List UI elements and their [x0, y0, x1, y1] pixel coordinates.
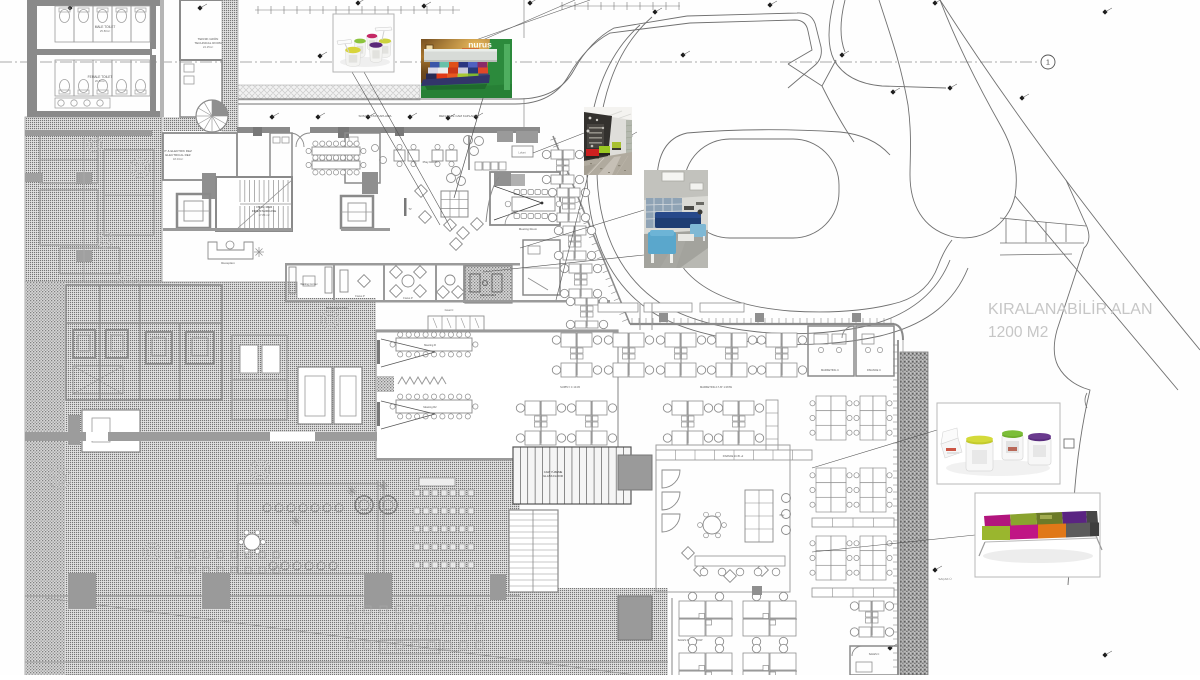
svg-text:TV: TV	[408, 207, 412, 211]
svg-text:24.25m²: 24.25m²	[203, 45, 213, 49]
svg-text:Play Room: Play Room	[423, 160, 438, 164]
svg-text:FINANCE C: FINANCE C	[867, 368, 881, 372]
svg-text:1: 1	[1046, 60, 1050, 67]
svg-text:KIRALANABİLİR ALAN: KIRALANABİLİR ALAN	[988, 299, 1153, 318]
svg-text:Meeting R2: Meeting R2	[423, 405, 437, 409]
svg-text:Focus P: Focus P	[403, 296, 413, 300]
svg-text:Çalışma Kabini: Çalışma Kabini	[480, 294, 497, 297]
svg-text:MARKETING 17 AT 1 ROW: MARKETING 17 AT 1 ROW	[700, 385, 732, 389]
svg-text:nurus: nurus	[468, 40, 492, 50]
svg-text:Focus P: Focus P	[355, 294, 365, 298]
svg-text:Meeting Room: Meeting Room	[519, 227, 538, 231]
svg-text:26.50m²: 26.50m²	[95, 79, 105, 83]
svg-text:REFLEKTE CAM KAPLAMA: REFLEKTE CAM KAPLAMA	[439, 114, 477, 118]
svg-text:SAÇAK Ü: SAÇAK Ü	[938, 577, 951, 581]
svg-text:Meeting R: Meeting R	[424, 343, 436, 347]
svg-text:Reception: Reception	[221, 261, 235, 265]
svg-text:17.84 m²: 17.84 m²	[258, 213, 269, 217]
svg-text:1200 M2: 1200 M2	[988, 324, 1048, 341]
svg-text:Lokart: Lokart	[518, 151, 525, 155]
svg-text:25.80m²: 25.80m²	[100, 29, 110, 33]
svg-text:18.04m²: 18.04m²	[173, 157, 183, 161]
svg-text:GLASS FLOOR: GLASS FLOOR	[543, 474, 563, 478]
svg-text:SUPPLY C 10.45: SUPPLY C 10.45	[560, 385, 580, 389]
svg-text:FINANCE 10.45 +2: FINANCE 10.45 +2	[723, 455, 744, 458]
svg-text:Waiting Corner: Waiting Corner	[300, 282, 317, 286]
svg-text:Marketing Archive: Marketing Archive	[326, 306, 349, 310]
svg-text:SALES C: SALES C	[869, 653, 880, 656]
svg-text:MARKETING C: MARKETING C	[821, 368, 839, 372]
svg-text:Coat C: Coat C	[445, 308, 454, 312]
svg-text:SOSYAL TAS KAPLAMA: SOSYAL TAS KAPLAMA	[358, 114, 391, 118]
